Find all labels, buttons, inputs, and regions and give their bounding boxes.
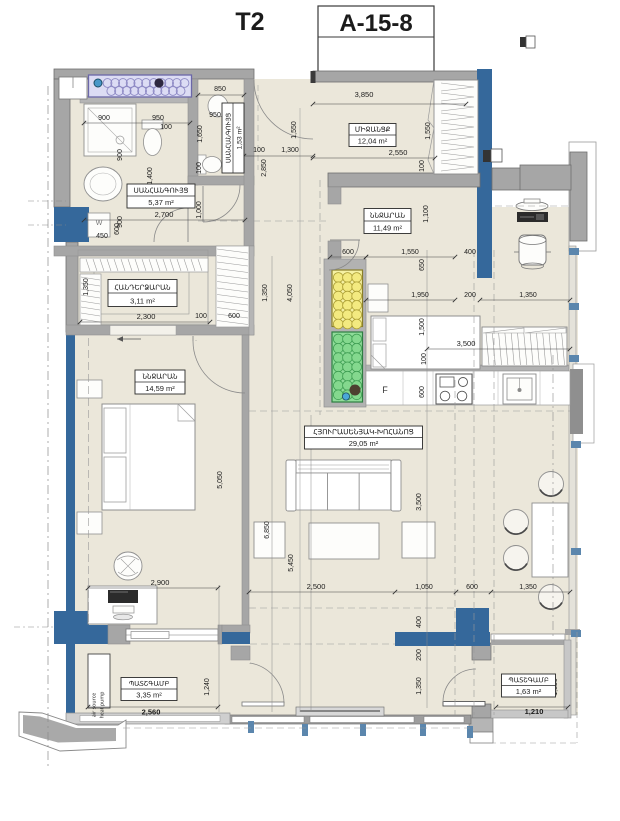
svg-text:1,210: 1,210	[525, 707, 544, 716]
svg-text:3,850: 3,850	[355, 90, 374, 99]
svg-text:5,37 m²: 5,37 m²	[148, 198, 174, 207]
svg-text:850: 850	[214, 86, 226, 93]
svg-text:1,240: 1,240	[204, 678, 211, 696]
svg-text:1,350: 1,350	[416, 677, 423, 695]
svg-text:1,550: 1,550	[425, 122, 432, 140]
svg-text:2,700: 2,700	[155, 210, 174, 219]
svg-text:200: 200	[416, 649, 423, 661]
svg-text:F: F	[382, 385, 388, 395]
svg-text:600: 600	[228, 313, 240, 320]
svg-text:950: 950	[152, 115, 164, 122]
svg-text:6,850: 6,850	[264, 521, 271, 539]
svg-text:2,550: 2,550	[389, 148, 408, 157]
svg-text:1,050: 1,050	[415, 584, 433, 591]
svg-text:12,04 m²: 12,04 m²	[358, 136, 388, 145]
svg-text:4,050: 4,050	[287, 284, 294, 302]
svg-text:600: 600	[114, 223, 121, 235]
svg-text:100: 100	[195, 313, 207, 320]
svg-text:1,100: 1,100	[423, 205, 430, 223]
svg-text:100: 100	[196, 162, 203, 174]
svg-text:A-15-8: A-15-8	[339, 10, 412, 37]
svg-text:100: 100	[253, 147, 265, 154]
svg-text:1,650: 1,650	[197, 125, 204, 143]
svg-text:2,850: 2,850	[261, 159, 268, 177]
svg-text:100: 100	[419, 160, 426, 172]
svg-text:2,300: 2,300	[137, 312, 156, 321]
svg-text:1,000: 1,000	[196, 201, 203, 219]
svg-text:400: 400	[416, 616, 423, 628]
svg-text:100: 100	[160, 124, 172, 131]
svg-text:100: 100	[421, 353, 428, 365]
svg-text:W: W	[96, 220, 103, 227]
svg-text:900: 900	[98, 115, 110, 122]
svg-text:3,500: 3,500	[457, 339, 476, 348]
svg-text:5,050: 5,050	[217, 471, 224, 489]
svg-text:3,35 m²: 3,35 m²	[136, 690, 162, 699]
svg-text:200: 200	[464, 292, 476, 299]
svg-text:600: 600	[466, 584, 478, 591]
svg-text:600: 600	[342, 249, 354, 256]
svg-text:900: 900	[117, 149, 124, 161]
svg-text:1,350: 1,350	[83, 278, 90, 296]
svg-text:T2: T2	[235, 8, 264, 36]
svg-text:650: 650	[419, 259, 426, 271]
svg-text:2,560: 2,560	[142, 708, 161, 717]
svg-text:3,11 m²: 3,11 m²	[130, 296, 155, 305]
svg-text:1,550: 1,550	[291, 121, 298, 139]
svg-text:1,400: 1,400	[147, 167, 154, 185]
svg-text:450: 450	[96, 233, 108, 240]
svg-text:5,450: 5,450	[288, 554, 295, 572]
svg-text:1,950: 1,950	[411, 292, 429, 299]
svg-text:1,350: 1,350	[519, 292, 537, 299]
svg-text:14,59 m²: 14,59 m²	[145, 384, 175, 393]
svg-text:1,63 m²: 1,63 m²	[516, 687, 542, 696]
svg-text:1,350: 1,350	[262, 284, 269, 302]
svg-text:400: 400	[464, 249, 476, 256]
svg-text:3,500: 3,500	[416, 493, 423, 511]
svg-text:2,900: 2,900	[151, 578, 170, 587]
svg-text:11,49 m²: 11,49 m²	[373, 223, 403, 232]
svg-text:1,300: 1,300	[281, 147, 299, 154]
svg-text:1,350: 1,350	[519, 584, 537, 591]
svg-text:600: 600	[419, 386, 426, 398]
svg-text:1,550: 1,550	[401, 249, 419, 256]
svg-text:1,500: 1,500	[419, 318, 426, 336]
svg-text:950: 950	[209, 112, 221, 119]
svg-text:1,53 m²: 1,53 m²	[237, 126, 244, 150]
svg-text:2,500: 2,500	[307, 582, 326, 591]
svg-text:29,05 m²: 29,05 m²	[349, 439, 379, 448]
